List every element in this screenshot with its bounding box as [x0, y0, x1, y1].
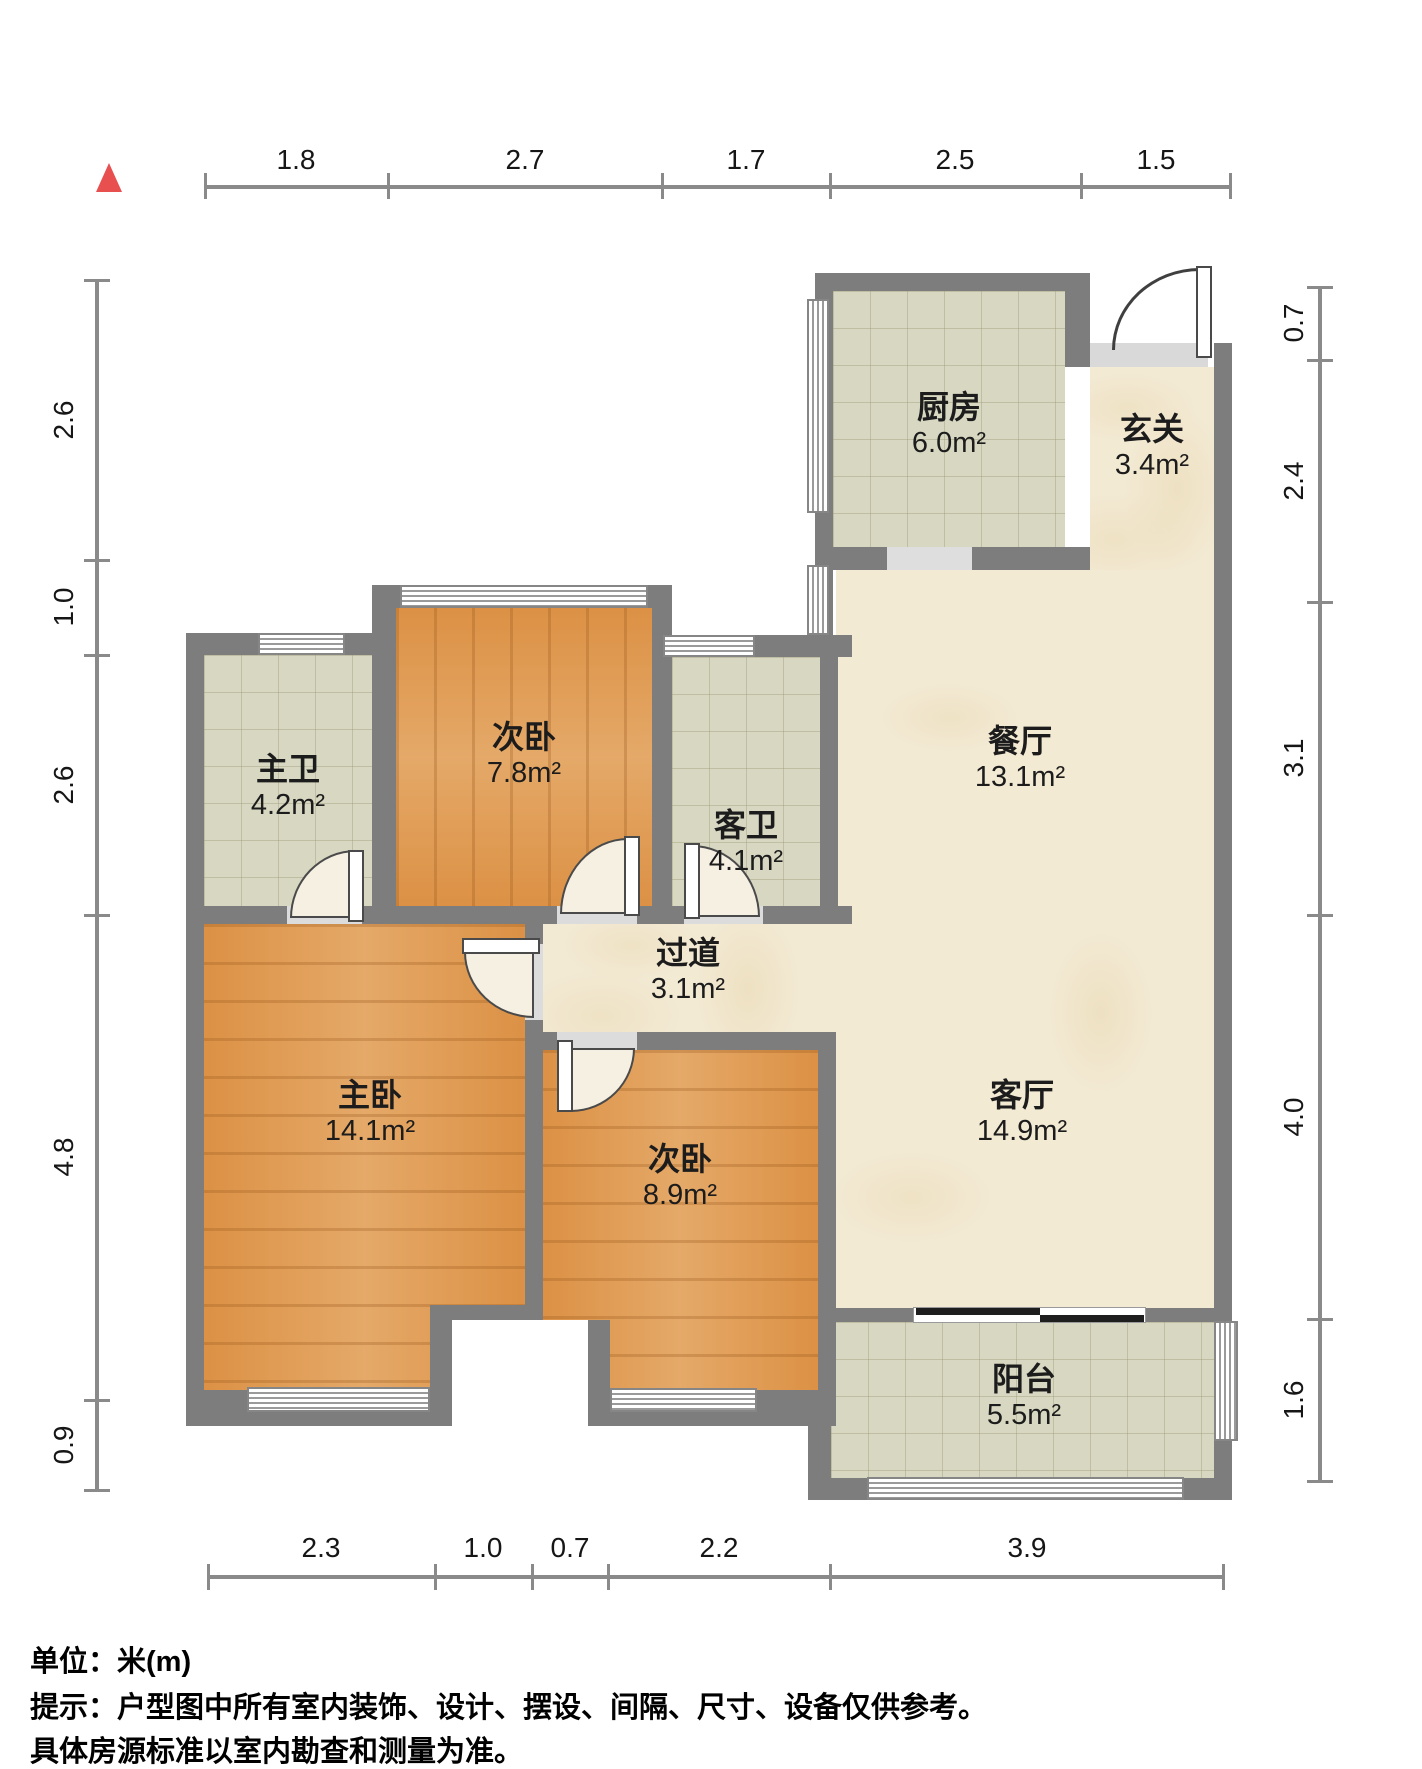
dim-label-left-2: 2.6 [48, 766, 80, 805]
entry-door-leaf [1196, 266, 1212, 358]
wall-kitchen-top [815, 273, 1090, 291]
room-name: 客卫 [709, 806, 783, 844]
bedroom-b-window [610, 1388, 757, 1412]
dim-tick [1307, 601, 1333, 604]
wall-left-outer [186, 633, 204, 1426]
guest-bath-window [663, 635, 755, 657]
dim-label-bottom-0: 2.3 [302, 1532, 341, 1564]
dim-label-top-4: 1.5 [1137, 144, 1176, 176]
dim-tick [204, 173, 207, 199]
wall-bedroomb-living [818, 1032, 836, 1426]
room-name: 餐厅 [975, 722, 1065, 760]
dim-line-left [95, 280, 99, 1490]
balcony-bottom-window [867, 1477, 1184, 1500]
dim-tick [1307, 914, 1333, 917]
dim-label-top-1: 2.7 [506, 144, 545, 176]
room-area: 13.1m² [975, 760, 1065, 794]
room-name: 过道 [651, 934, 725, 972]
dim-tick [1307, 359, 1333, 362]
room-label-entry: 玄关 3.4m² [1115, 410, 1189, 482]
dim-tick [1307, 1318, 1333, 1321]
dim-line-top [205, 185, 1231, 189]
dim-label-right-2: 3.1 [1278, 739, 1310, 778]
room-area: 8.9m² [643, 1178, 717, 1212]
room-label-hallway: 过道 3.1m² [651, 934, 725, 1006]
dim-label-left-1: 1.0 [48, 588, 80, 627]
dim-label-bottom-3: 2.2 [700, 1532, 739, 1564]
wall-kitchen-entry [1065, 273, 1090, 367]
room-name: 厨房 [912, 388, 986, 426]
entry-door-arc [1112, 268, 1200, 350]
dim-tick [1307, 286, 1333, 289]
dim-tick [1080, 173, 1083, 199]
dim-label-right-3: 4.0 [1278, 1098, 1310, 1137]
bedroom-a-window [400, 585, 648, 608]
opening-kitchen-doorway [887, 547, 972, 570]
dim-line-right [1318, 287, 1322, 1481]
dim-label-bottom-4: 3.9 [1008, 1532, 1047, 1564]
room-label-master-bath: 主卫 4.2m² [251, 750, 325, 822]
dim-tick [531, 1564, 534, 1590]
balcony-sliding-door-panel2 [1040, 1315, 1144, 1322]
room-name: 次卧 [487, 718, 561, 756]
room-area: 4.2m² [251, 788, 325, 822]
dim-label-left-3: 4.8 [48, 1138, 80, 1177]
dim-tick [84, 1399, 110, 1402]
north-triangle-icon [96, 163, 122, 192]
room-label-bedroom-b: 次卧 8.9m² [643, 1140, 717, 1212]
room-area: 3.1m² [651, 972, 725, 1006]
footer-note-line2: 具体房源标准以室内勘查和测量为准。 [30, 1728, 523, 1769]
room-name: 主卫 [251, 750, 325, 788]
dim-line-bottom [208, 1575, 1224, 1579]
room-label-living: 客厅 14.9m² [977, 1076, 1067, 1148]
floor-plan: 厨房 6.0m² 玄关 3.4m² 餐厅 13.1m² 主卫 4.2m² 次卧 … [0, 0, 1422, 1769]
room-name: 主卧 [325, 1076, 415, 1114]
room-area: 4.1m² [709, 844, 783, 878]
room-name: 次卧 [643, 1140, 717, 1178]
dim-label-left-0: 2.6 [48, 401, 80, 440]
room-label-guest-bath: 客卫 4.1m² [709, 806, 783, 878]
dim-label-top-3: 2.5 [936, 144, 975, 176]
room-label-kitchen: 厨房 6.0m² [912, 388, 986, 460]
dining-side-window [807, 565, 829, 635]
room-area: 5.5m² [987, 1398, 1061, 1432]
wall-gbath-dining [820, 635, 838, 924]
wall-mbath-bedrooma [372, 585, 396, 907]
balcony-sliding-door-panel1 [916, 1308, 1040, 1315]
room-label-balcony: 阳台 5.5m² [987, 1360, 1061, 1432]
dim-tick [84, 279, 110, 282]
room-area: 7.8m² [487, 756, 561, 790]
room-area: 6.0m² [912, 426, 986, 460]
dim-tick [84, 1489, 110, 1492]
room-name: 玄关 [1115, 410, 1189, 448]
room-label-bedroom-a: 次卧 7.8m² [487, 718, 561, 790]
dim-label-bottom-1: 1.0 [464, 1532, 503, 1564]
dim-label-right-0: 0.7 [1278, 304, 1310, 343]
building-notch [452, 1320, 588, 1408]
dim-tick [387, 173, 390, 199]
dim-label-right-4: 1.6 [1278, 1381, 1310, 1420]
dim-label-top-0: 1.8 [277, 144, 316, 176]
room-area: 3.4m² [1115, 448, 1189, 482]
bedroom-a-door-leaf [624, 836, 640, 916]
room-area: 14.1m² [325, 1114, 415, 1148]
dim-label-top-2: 1.7 [727, 144, 766, 176]
master-bath-window [258, 633, 345, 655]
room-area: 14.9m² [977, 1114, 1067, 1148]
guest-bath-door-leaf [684, 843, 700, 919]
room-name: 阳台 [987, 1360, 1061, 1398]
dim-tick [434, 1564, 437, 1590]
dim-label-left-4: 0.9 [48, 1426, 80, 1465]
kitchen-side-window [807, 299, 829, 513]
dim-tick [84, 914, 110, 917]
dim-tick [84, 654, 110, 657]
bedroom-b-door-leaf [557, 1040, 573, 1112]
room-label-master-bedroom: 主卧 14.1m² [325, 1076, 415, 1148]
dim-tick [1229, 173, 1232, 199]
dim-tick [1222, 1564, 1225, 1590]
dim-tick [829, 1564, 832, 1590]
footer-note-line1: 提示：户型图中所有室内装饰、设计、摆设、间隔、尺寸、设备仅供参考。 [30, 1684, 987, 1726]
dim-tick [84, 559, 110, 562]
dim-label-bottom-2: 0.7 [551, 1532, 590, 1564]
master-bath-door-leaf [348, 850, 364, 922]
master-bedroom-door-leaf [462, 938, 540, 954]
room-name: 客厅 [977, 1076, 1067, 1114]
dim-tick [207, 1564, 210, 1590]
dim-tick [829, 173, 832, 199]
room-label-dining: 餐厅 13.1m² [975, 722, 1065, 794]
dining-living-floor [836, 570, 1214, 1308]
dim-tick [661, 173, 664, 199]
balcony-right-window [1214, 1321, 1238, 1441]
dim-tick [1307, 1480, 1333, 1483]
dim-label-right-1: 2.4 [1278, 462, 1310, 501]
master-bedroom-window [247, 1387, 430, 1412]
dim-tick [607, 1564, 610, 1590]
footer-unit-line: 单位：米(m) [30, 1638, 191, 1680]
